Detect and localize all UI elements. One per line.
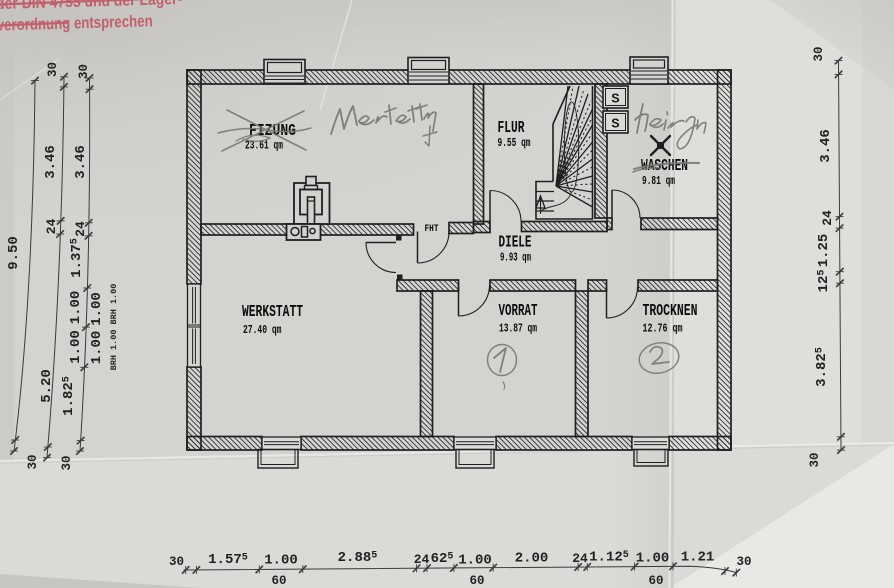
svg-text:TROCKNEN: TROCKNEN [643, 302, 698, 321]
svg-text:1.00: 1.00 [264, 553, 298, 569]
svg-text:1.00: 1.00 [458, 553, 492, 569]
svg-text:30: 30 [60, 455, 74, 470]
svg-text:1.00: 1.00 [68, 291, 84, 325]
svg-text:3.46: 3.46 [818, 129, 834, 163]
svg-text:30: 30 [808, 452, 822, 467]
svg-text:2.00: 2.00 [515, 551, 549, 567]
svg-text:9.55 qm: 9.55 qm [498, 137, 531, 150]
svg-text:9.50: 9.50 [6, 236, 22, 270]
svg-text:13.87 qm: 13.87 qm [499, 323, 537, 336]
svg-text:60: 60 [648, 574, 663, 588]
svg-text:30: 30 [46, 62, 60, 77]
svg-text:1.00: 1.00 [68, 330, 84, 364]
svg-text:5.20: 5.20 [39, 369, 55, 403]
svg-text:24: 24 [44, 219, 59, 235]
svg-text:27.40 qm: 27.40 qm [243, 324, 282, 337]
svg-text:1.25: 1.25 [816, 234, 832, 268]
svg-text:DIELE: DIELE [499, 234, 532, 253]
svg-text:3.46: 3.46 [43, 145, 59, 179]
svg-text:30: 30 [26, 454, 40, 469]
svg-text:FHT: FHT [425, 224, 439, 235]
svg-text:VORRAT: VORRAT [499, 302, 538, 321]
svg-text:60: 60 [469, 574, 484, 588]
svg-text:1.21: 1.21 [681, 550, 715, 566]
svg-text:12.76 qm: 12.76 qm [643, 323, 683, 336]
svg-text:60: 60 [271, 574, 286, 588]
svg-text:1.00: 1.00 [636, 551, 670, 567]
svg-text:30: 30 [77, 64, 91, 79]
svg-text:BRH 1.00 BRH 1.00: BRH 1.00 BRH 1.00 [109, 284, 119, 371]
svg-text:S: S [611, 117, 619, 133]
svg-text:30: 30 [736, 555, 751, 569]
svg-text:30: 30 [812, 46, 826, 61]
svg-text:24: 24 [73, 221, 88, 237]
svg-text:FLUR: FLUR [498, 119, 526, 138]
svg-text:24: 24 [820, 210, 835, 226]
svg-text:30: 30 [169, 555, 184, 569]
svg-text:1.00: 1.00 [89, 331, 105, 365]
svg-text:24: 24 [414, 552, 430, 567]
svg-text:9.93 qm: 9.93 qm [500, 252, 531, 265]
svg-text:9.81 qm: 9.81 qm [642, 175, 675, 188]
svg-text:1.00: 1.00 [89, 292, 105, 326]
svg-text:3.46: 3.46 [73, 145, 89, 179]
svg-text:WERKSTATT: WERKSTATT [242, 303, 303, 322]
svg-text:24: 24 [572, 551, 588, 566]
svg-text:S: S [611, 92, 619, 108]
